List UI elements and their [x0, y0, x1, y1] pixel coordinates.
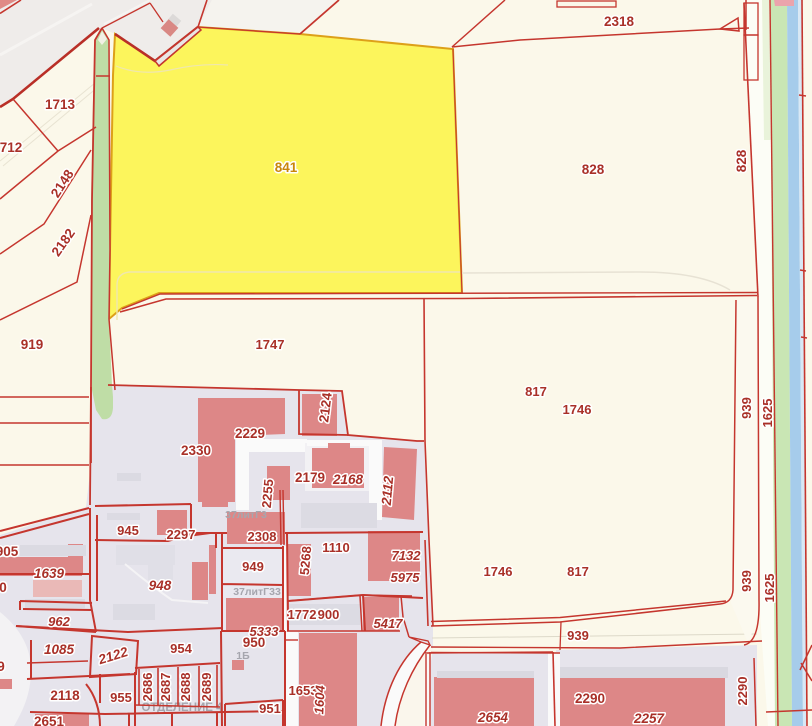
svg-text:1746: 1746	[484, 564, 513, 579]
svg-text:828: 828	[582, 162, 605, 177]
svg-text:5975: 5975	[391, 570, 421, 585]
svg-text:2290: 2290	[575, 691, 605, 706]
svg-text:2290: 2290	[735, 677, 750, 706]
svg-text:1772: 1772	[288, 607, 317, 622]
svg-text:962: 962	[48, 614, 70, 629]
svg-text:948: 948	[149, 578, 172, 593]
svg-text:2318: 2318	[604, 14, 635, 29]
svg-text:2687: 2687	[158, 673, 173, 702]
svg-text:2654: 2654	[477, 710, 509, 725]
svg-text:2689: 2689	[199, 673, 214, 702]
svg-text:2255: 2255	[259, 479, 276, 509]
svg-text:817: 817	[525, 384, 547, 399]
svg-text:1746: 1746	[563, 402, 592, 417]
svg-text:951: 951	[259, 701, 281, 716]
svg-text:2297: 2297	[167, 527, 196, 542]
svg-text:712: 712	[0, 140, 22, 155]
svg-text:919: 919	[21, 337, 44, 352]
svg-text:37литГ3: 37литГ3	[225, 509, 267, 521]
svg-text:2118: 2118	[50, 688, 80, 703]
svg-text:1085: 1085	[44, 642, 75, 657]
svg-text:37литГ33: 37литГ33	[233, 586, 281, 598]
svg-text:841: 841	[275, 160, 298, 175]
svg-text:5417: 5417	[374, 616, 404, 631]
svg-text:2179: 2179	[295, 470, 325, 485]
svg-text:2112: 2112	[379, 475, 397, 507]
svg-text:0: 0	[0, 580, 7, 595]
svg-text:2651: 2651	[34, 714, 65, 726]
svg-text:949: 949	[242, 559, 264, 574]
svg-text:2308: 2308	[248, 529, 277, 544]
svg-text:2168: 2168	[332, 472, 364, 487]
svg-text:1639: 1639	[34, 566, 65, 581]
svg-text:939: 939	[739, 397, 754, 419]
svg-text:1604: 1604	[311, 684, 328, 714]
svg-text:828: 828	[734, 149, 749, 172]
svg-text:2257: 2257	[633, 711, 666, 726]
svg-text:945: 945	[117, 523, 139, 538]
svg-text:1713: 1713	[45, 97, 76, 112]
svg-text:954: 954	[170, 641, 192, 656]
svg-text:900: 900	[318, 607, 340, 622]
svg-text:1Б: 1Б	[236, 650, 250, 662]
svg-text:2686: 2686	[140, 673, 155, 702]
svg-text:5268: 5268	[297, 546, 314, 576]
svg-text:5333: 5333	[250, 624, 280, 639]
svg-text:9: 9	[0, 659, 5, 674]
svg-text:2330: 2330	[181, 443, 211, 458]
svg-text:1625: 1625	[762, 574, 777, 603]
svg-text:905: 905	[0, 544, 19, 559]
svg-text:1625: 1625	[760, 399, 775, 428]
svg-text:817: 817	[567, 564, 589, 579]
svg-text:1110: 1110	[322, 540, 350, 555]
svg-text:939: 939	[739, 570, 754, 592]
svg-text:939: 939	[567, 628, 589, 643]
svg-text:955: 955	[110, 690, 132, 705]
svg-text:2229: 2229	[235, 426, 265, 441]
svg-text:2688: 2688	[178, 673, 193, 702]
svg-text:7132: 7132	[392, 548, 422, 563]
svg-text:1747: 1747	[256, 337, 285, 352]
